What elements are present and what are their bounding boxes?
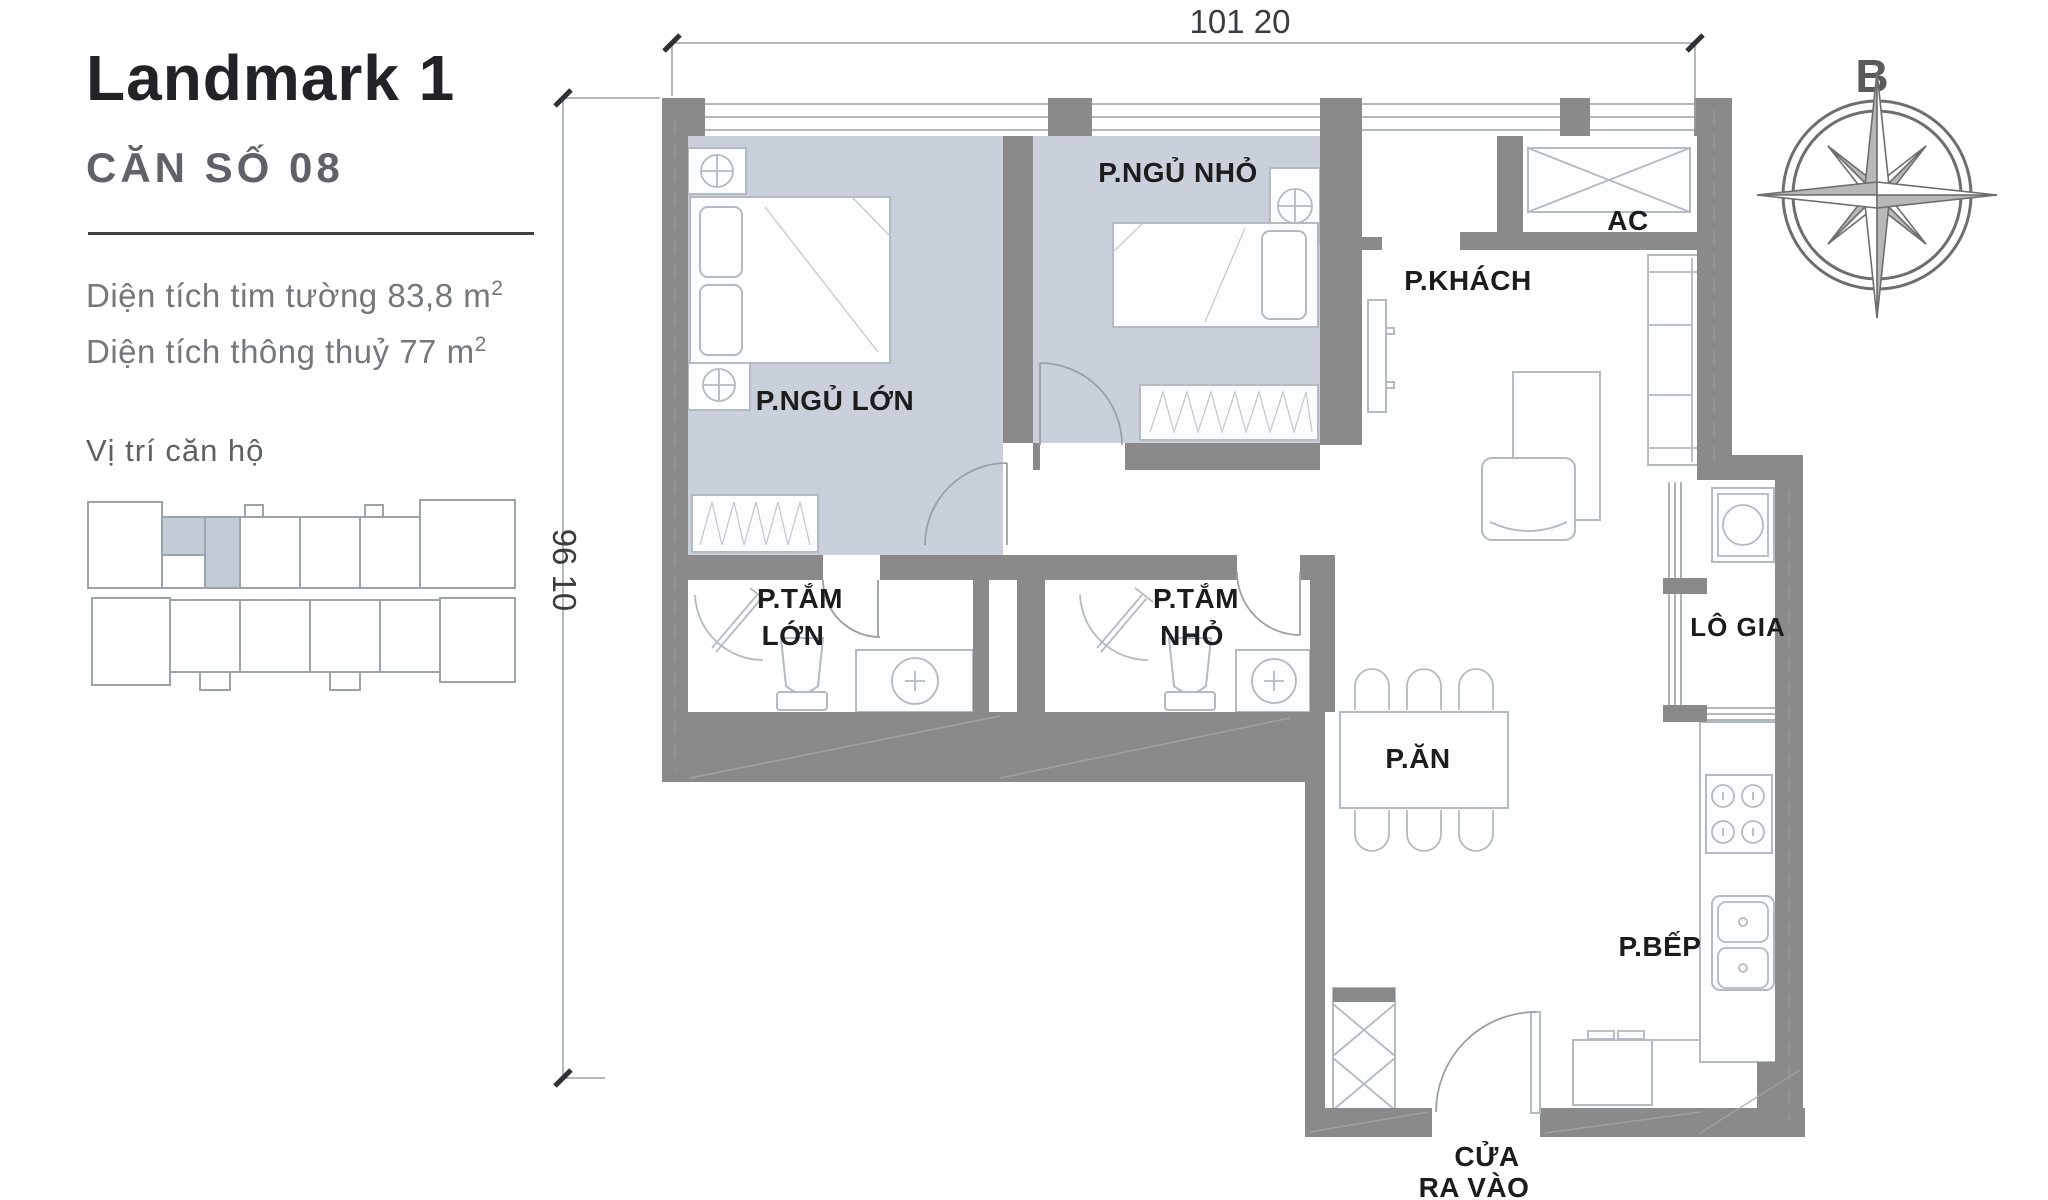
label-dining: P.ĂN (1385, 743, 1450, 774)
living-furniture (1368, 255, 1700, 540)
label-bath-master-1: P.TẮM (757, 583, 843, 614)
label-kitchen: P.BẾP (1619, 931, 1702, 962)
area-gross-text: Diện tích tim tường 83,8 m (86, 277, 491, 314)
entrance-door-leaf (1531, 1012, 1540, 1113)
top-window (1092, 100, 1320, 134)
kitchen-counter (1700, 722, 1776, 1062)
dining-chair (1407, 810, 1441, 851)
entrance-cabinet (1333, 988, 1395, 1113)
location-title: Vị trí căn hộ (86, 433, 566, 469)
area-net: Diện tích thông thuỷ 77 m2 (86, 333, 566, 371)
unit-highlight-lower (205, 517, 240, 588)
label-living: P.KHÁCH (1404, 265, 1531, 296)
loggia-fixtures (1712, 488, 1774, 562)
shoe-cabinet (1333, 988, 1395, 1113)
fridge-handle (1618, 1031, 1644, 1039)
shower-wand-icon (1097, 588, 1153, 652)
label-bath-small-2: NHỎ (1160, 619, 1224, 651)
dining-chair (1459, 810, 1493, 851)
info-panel: Landmark 1 CĂN SỐ 08 Diện tích tim tường… (86, 46, 566, 469)
toilet-tank (1165, 692, 1215, 710)
tv-console (1368, 300, 1386, 412)
area-gross: Diện tích tim tường 83,8 m2 (86, 277, 566, 315)
unit-number: CĂN SỐ 08 (86, 144, 566, 192)
dimension-top-value: 101 20 (1190, 3, 1291, 40)
top-window (1362, 100, 1560, 134)
label-bedroom-small: P.NGỦ NHỎ (1098, 156, 1258, 188)
washing-machine (1712, 488, 1774, 562)
area-net-sup: 2 (475, 333, 487, 356)
dining-chair (1459, 669, 1493, 710)
label-bedroom-master: P.NGỦ LỚN (756, 384, 915, 416)
label-entrance-1: CỬA (1454, 1140, 1519, 1172)
compass-icon: B (1757, 50, 1997, 318)
area-net-text: Diện tích thông thuỷ 77 m (86, 333, 475, 370)
page-title: Landmark 1 (86, 46, 566, 110)
bedroom-small-right-wall (1320, 136, 1362, 445)
floorplan-page: P.NGỦ NHỎ P.NGỦ LỚN P.KHÁCH AC P.TẮM LỚN… (0, 0, 2048, 1200)
label-bath-small-1: P.TẮM (1153, 583, 1239, 614)
compass-north-label: B (1855, 50, 1888, 102)
pillow (1262, 231, 1306, 319)
tv-mount (1386, 382, 1394, 388)
door-bath-small (1237, 572, 1300, 635)
fridge-handle (1588, 1031, 1614, 1039)
area-gross-sup: 2 (491, 277, 503, 300)
ac-closet (1528, 148, 1690, 212)
top-window (705, 100, 1048, 134)
dining-chair (1407, 669, 1441, 710)
entrance-door-swing (1436, 1012, 1536, 1112)
bottom-left-band (662, 712, 1325, 782)
toilet-tank (777, 692, 827, 710)
pillow (700, 207, 742, 277)
inter-bedroom-wall (1003, 136, 1033, 443)
label-bath-master-2: LỚN (762, 620, 825, 651)
divider (88, 232, 534, 235)
label-entrance-2: RA VÀO (1419, 1172, 1530, 1200)
fridge (1573, 1040, 1652, 1105)
label-loggia: LÔ GIA (1690, 612, 1786, 642)
kitchen-sink (1712, 896, 1774, 990)
dining-chair (1355, 669, 1389, 710)
armchair (1482, 458, 1575, 540)
kitchen-fixtures (1573, 722, 1776, 1105)
dining-chair (1355, 810, 1389, 851)
label-ac: AC (1607, 205, 1648, 236)
dimension-left-value: 96 10 (546, 529, 583, 612)
tv-mount (1386, 328, 1394, 334)
shoe-cabinet-top (1333, 988, 1395, 1002)
top-window (1590, 100, 1694, 134)
building-locator (88, 500, 515, 690)
pillow (700, 285, 742, 355)
